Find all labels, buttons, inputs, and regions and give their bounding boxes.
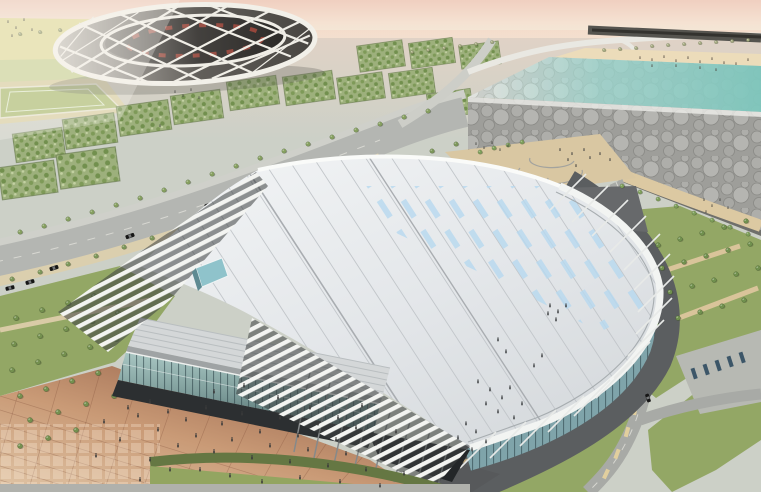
scene-canvas: [0, 0, 761, 492]
aerial-rendering: [0, 0, 761, 492]
